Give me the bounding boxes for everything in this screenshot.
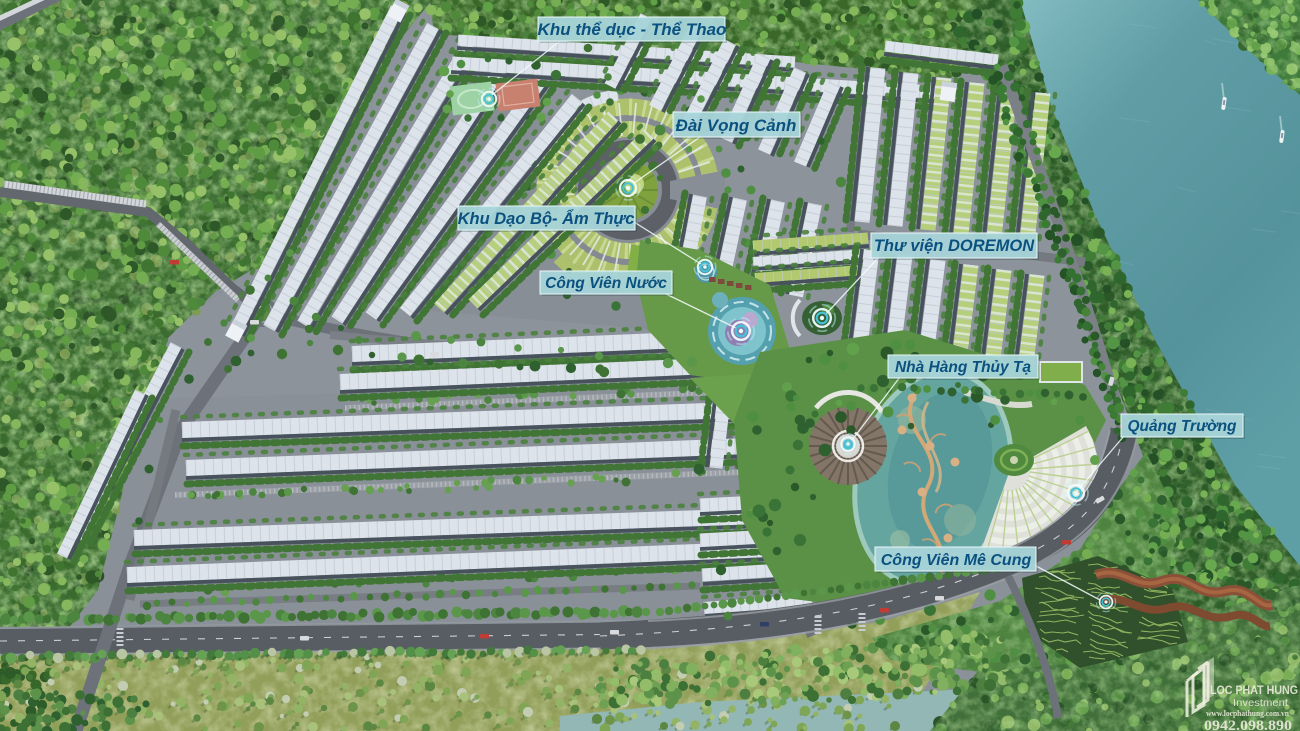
svg-text:Công Viên Mê Cung: Công Viên Mê Cung (881, 552, 1032, 569)
svg-text:Investment: Investment (1233, 697, 1288, 709)
svg-text:Nhà Hàng Thủy Tạ: Nhà Hàng Thủy Tạ (895, 359, 1031, 376)
svg-text:0942.098.890: 0942.098.890 (1204, 718, 1292, 731)
svg-text:www.locphathung.com.vn: www.locphathung.com.vn (1206, 709, 1290, 718)
svg-text:Đài Vọng Cảnh: Đài Vọng Cảnh (676, 116, 797, 135)
svg-text:LOC PHAT HUNG: LOC PHAT HUNG (1210, 685, 1298, 697)
svg-text:Khu Dạo Bộ- Ẩm Thực: Khu Dạo Bộ- Ẩm Thực (458, 209, 635, 228)
svg-text:Khu thể dục - Thể Thao: Khu thể dục - Thể Thao (538, 20, 727, 39)
svg-text:Công Viên Nước: Công Viên Nước (545, 275, 667, 292)
svg-text:Thư viện DOREMON: Thư viện DOREMON (874, 237, 1035, 255)
svg-text:Quảng Trường: Quảng Trường (1127, 418, 1237, 435)
